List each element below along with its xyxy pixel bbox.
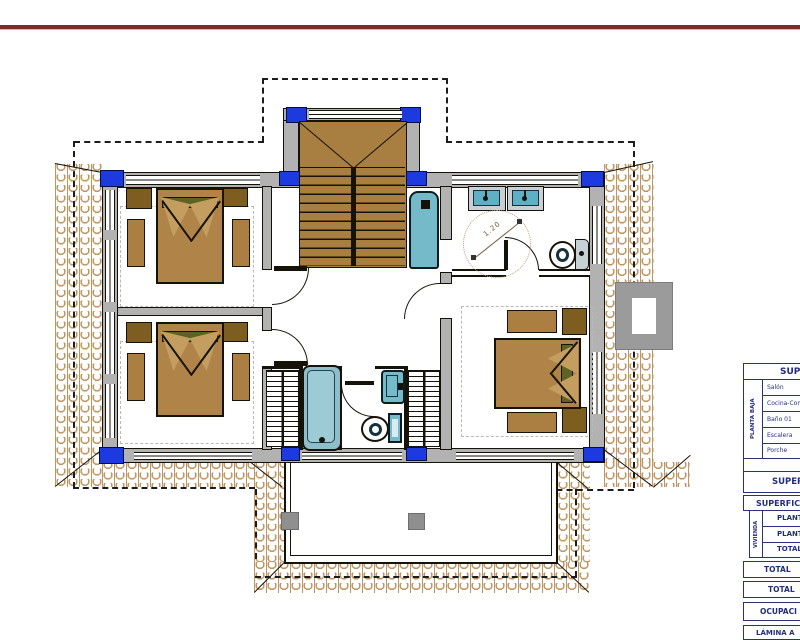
window	[105, 240, 115, 302]
wardrobe	[562, 308, 587, 335]
wardrobe	[126, 188, 152, 209]
bathtub-drain	[319, 437, 325, 443]
toilet-tank	[575, 239, 589, 270]
wall-sink-tap	[398, 383, 403, 390]
chimney-flue	[632, 298, 656, 334]
column	[281, 447, 300, 461]
sink-counter	[507, 186, 544, 211]
stair-steps-right	[355, 168, 405, 266]
bathtub-inner	[307, 370, 335, 443]
roof-tiles-left	[55, 164, 102, 487]
areas-table-spacer	[743, 458, 800, 472]
table-row: Salón	[763, 380, 800, 396]
wardrobe	[222, 322, 248, 342]
chimney	[615, 282, 673, 350]
window	[309, 110, 402, 119]
door-leaf	[274, 266, 307, 271]
wall-hall-right	[440, 318, 452, 450]
column	[583, 447, 604, 462]
table-row: Porche	[763, 444, 800, 458]
stair-winder-line	[299, 122, 354, 169]
overhang-dashed-line	[255, 576, 577, 578]
toilet-bowl-inner	[556, 248, 569, 262]
wardrobe	[562, 407, 587, 433]
door-arc	[341, 384, 374, 417]
door-arc	[272, 329, 308, 365]
overhang-dashed-line	[73, 141, 75, 488]
nightstand	[232, 219, 250, 267]
toilet-bowl-inner	[369, 423, 382, 436]
closet	[266, 370, 299, 447]
window	[456, 452, 574, 460]
wall-bath-bedroom-partition	[539, 269, 590, 277]
nightstand	[507, 310, 557, 333]
areas-table-total: SUPERFI	[743, 471, 800, 493]
nightstand	[127, 219, 145, 267]
areas-table-group-col: PLANTA BAJA	[744, 380, 763, 458]
table-row: Escalera	[763, 428, 800, 444]
nightstand	[127, 353, 145, 401]
column	[99, 447, 124, 464]
wall-hall-right	[440, 186, 452, 240]
wall-bedroom-divider	[117, 307, 263, 316]
stair-steps-left	[300, 168, 351, 266]
summary-occupancy-row: OCUPACI	[743, 602, 800, 621]
table-row: Baño 01	[763, 412, 800, 428]
door-leaf	[274, 361, 307, 366]
roof-tiles-bottom-left	[102, 462, 255, 487]
porch-wall-outline	[284, 455, 558, 564]
summary-total-row: TOTAL	[743, 561, 800, 578]
summary-table-group-label: VIVIENDA	[750, 511, 762, 557]
areas-table-body: PLANTA BAJA Salón Cocina-Comedor Baño 01…	[743, 379, 800, 459]
overhang-dashed-line	[74, 141, 264, 143]
overhang-dashed-line	[446, 141, 634, 143]
overhang-dashed-line	[262, 78, 448, 80]
nightstand	[507, 412, 557, 433]
door-leaf	[345, 381, 374, 385]
window	[592, 352, 602, 414]
overhang-dashed-line	[262, 78, 264, 142]
wardrobe	[222, 188, 248, 207]
window	[105, 384, 115, 438]
porch-column	[408, 513, 425, 530]
toilet-bowl	[549, 241, 576, 269]
window	[126, 175, 260, 185]
overhang-dashed-line	[255, 489, 257, 559]
bathtub	[302, 365, 342, 451]
porch-wall-inner-line	[290, 457, 552, 556]
wall-hall-bedrooms	[262, 186, 272, 270]
column	[100, 170, 124, 187]
stair-divider	[351, 168, 356, 266]
sheet-rule-light	[0, 29, 800, 30]
window	[105, 312, 115, 374]
door-arc	[404, 283, 440, 319]
window	[452, 175, 578, 185]
wall-bath-core	[262, 366, 302, 369]
wall-sink	[381, 370, 405, 404]
overhang-dashed-line	[575, 489, 577, 577]
wall-bath-core	[375, 366, 406, 369]
window	[105, 190, 115, 230]
sink-drain-dot	[483, 196, 488, 201]
staircase	[299, 121, 407, 268]
stair-winder-line	[353, 122, 408, 169]
toilet-tank-dot	[579, 251, 584, 256]
summary-sheet-row: LÁMINA A	[743, 625, 800, 640]
wardrobe	[126, 322, 152, 343]
summary-table-header: SUPERFIC	[743, 495, 800, 511]
table-row: Cocina-Comedor	[763, 396, 800, 412]
closet	[408, 370, 440, 447]
table-row: TOTAL	[763, 543, 800, 557]
porch-column	[281, 512, 299, 530]
window	[592, 206, 602, 264]
nightstand	[232, 353, 250, 401]
sink-drain-dot	[522, 196, 527, 201]
column	[279, 171, 300, 186]
shower	[409, 191, 439, 269]
drawing-sheet: { "annotations": { "turning_circle_diame…	[0, 0, 800, 640]
column	[581, 171, 604, 187]
overhang-dashed-line	[73, 487, 255, 489]
table-row: PLANTA	[763, 511, 800, 527]
table-row: PLANTA	[763, 527, 800, 543]
turning-circle-end-dot	[471, 255, 476, 260]
summary-total-row: TOTAL	[743, 581, 800, 598]
column	[406, 171, 427, 186]
column	[406, 447, 427, 461]
turning-circle-end-dot	[517, 219, 522, 224]
toilet-bowl	[361, 416, 389, 442]
overhang-dashed-line	[446, 78, 448, 142]
door-arc	[272, 268, 309, 305]
summary-table-group-col: VIVIENDA	[750, 511, 763, 557]
toilet-tank	[388, 413, 402, 443]
wall-hall-right	[440, 272, 452, 284]
sink-counter	[468, 186, 506, 211]
toilet-tank-band	[392, 419, 398, 437]
summary-table-body: VIVIENDA PLANTA PLANTA TOTAL	[749, 510, 800, 558]
window	[134, 452, 252, 460]
wall-sink-basin	[386, 375, 398, 397]
wall-hall-bedrooms	[262, 307, 272, 331]
areas-table-header: SUPE	[743, 363, 800, 380]
shower-drain	[421, 200, 430, 209]
window	[302, 452, 402, 460]
areas-table-group-label: PLANTA BAJA	[744, 380, 762, 458]
